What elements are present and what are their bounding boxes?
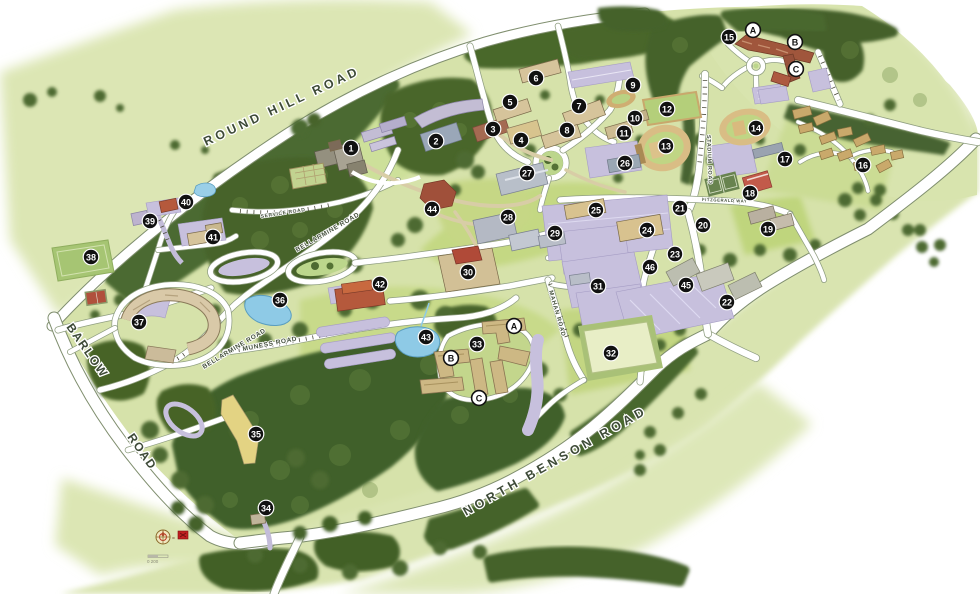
svg-text:A: A <box>750 26 757 36</box>
svg-text:8: 8 <box>564 126 569 136</box>
svg-text:45: 45 <box>681 281 691 291</box>
svg-text:23: 23 <box>670 250 680 260</box>
svg-text:20: 20 <box>698 221 708 231</box>
svg-text:9: 9 <box>630 81 635 91</box>
svg-text:27: 27 <box>522 169 532 179</box>
svg-text:1: 1 <box>348 144 353 154</box>
svg-text:39: 39 <box>145 217 155 227</box>
svg-text:C: C <box>793 65 800 75</box>
svg-text:28: 28 <box>503 213 513 223</box>
svg-text:A: A <box>511 322 518 332</box>
svg-text:B: B <box>792 38 799 48</box>
svg-text:19: 19 <box>763 225 773 235</box>
svg-text:21: 21 <box>675 204 685 214</box>
svg-text:=: = <box>172 536 175 542</box>
svg-text:37: 37 <box>134 318 144 328</box>
svg-text:12: 12 <box>662 105 672 115</box>
svg-text:6: 6 <box>533 74 538 84</box>
svg-text:B: B <box>448 354 455 364</box>
svg-text:13: 13 <box>661 142 671 152</box>
svg-text:22: 22 <box>722 298 732 308</box>
svg-text:26: 26 <box>620 159 630 169</box>
svg-text:32: 32 <box>606 349 616 359</box>
svg-text:33: 33 <box>472 340 482 350</box>
svg-text:18: 18 <box>745 189 755 199</box>
svg-text:34: 34 <box>261 504 271 514</box>
svg-text:10: 10 <box>630 114 640 124</box>
svg-text:31: 31 <box>593 282 603 292</box>
svg-text:38: 38 <box>86 253 96 263</box>
svg-text:41: 41 <box>208 233 218 243</box>
svg-text:44: 44 <box>427 205 437 215</box>
svg-text:29: 29 <box>550 229 560 239</box>
svg-text:2: 2 <box>433 137 438 147</box>
svg-text:30: 30 <box>463 268 473 278</box>
svg-text:4: 4 <box>518 136 523 146</box>
svg-text:7: 7 <box>576 102 581 112</box>
svg-text:40: 40 <box>181 198 191 208</box>
svg-text:11: 11 <box>619 129 629 139</box>
svg-text:36: 36 <box>275 296 285 306</box>
svg-text:3: 3 <box>490 125 495 135</box>
svg-text:35: 35 <box>251 430 261 440</box>
svg-text:C: C <box>476 394 483 404</box>
svg-text:46: 46 <box>645 263 655 273</box>
svg-text:0 200: 0 200 <box>147 559 159 564</box>
svg-text:17: 17 <box>780 155 790 165</box>
svg-text:42: 42 <box>375 280 385 290</box>
svg-text:14: 14 <box>751 124 761 134</box>
svg-text:43: 43 <box>421 333 431 343</box>
svg-text:24: 24 <box>642 226 652 236</box>
svg-text:15: 15 <box>724 33 734 43</box>
svg-text:25: 25 <box>591 206 601 216</box>
svg-text:5: 5 <box>507 98 512 108</box>
svg-text:16: 16 <box>858 161 868 171</box>
